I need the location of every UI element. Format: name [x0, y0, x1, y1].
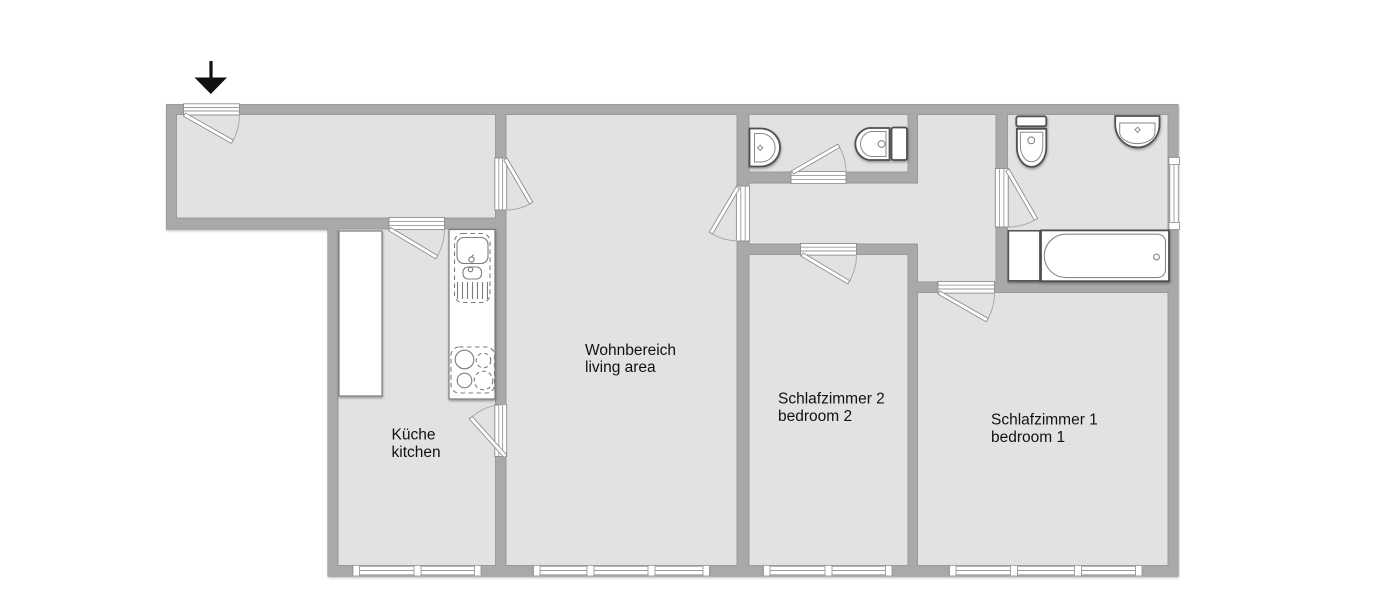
- svg-text:bedroom 2: bedroom 2: [778, 408, 852, 425]
- svg-text:Wohnbereich: Wohnbereich: [585, 342, 676, 359]
- svg-text:Küche: Küche: [392, 427, 436, 444]
- svg-text:bedroom 1: bedroom 1: [991, 429, 1065, 446]
- svg-text:kitchen: kitchen: [392, 444, 441, 461]
- svg-text:Schlafzimmer 2: Schlafzimmer 2: [778, 391, 885, 408]
- svg-text:living area: living area: [585, 359, 656, 376]
- svg-text:Schlafzimmer 1: Schlafzimmer 1: [991, 412, 1098, 429]
